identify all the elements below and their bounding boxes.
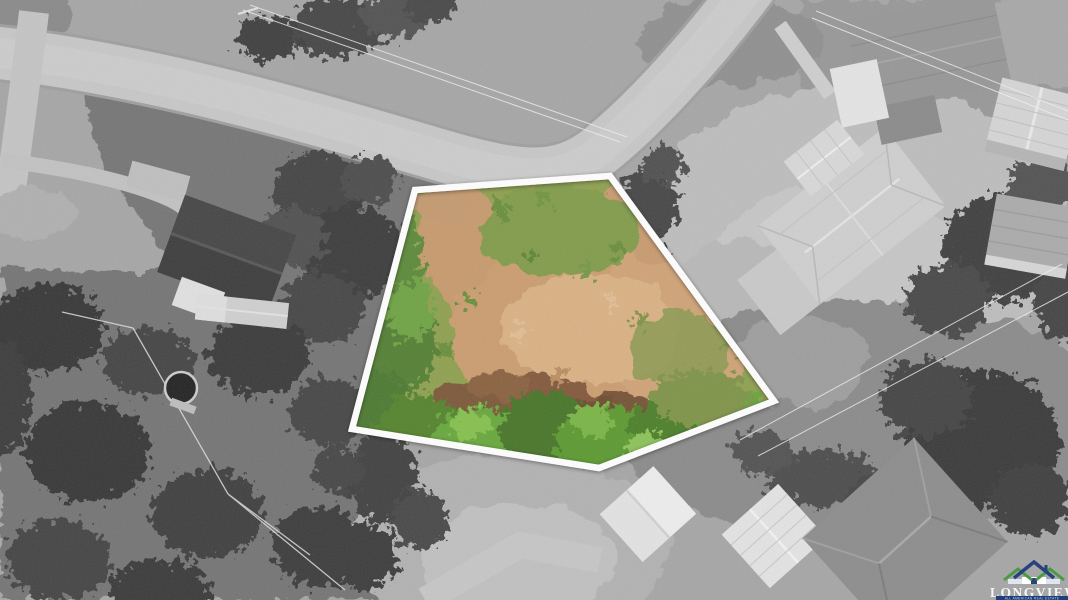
film-grain-overlay xyxy=(0,0,1068,600)
aerial-photo: LONGVIEW ALL AMERICAN REAL ESTATE xyxy=(0,0,1068,600)
aerial-photo-canvas: LONGVIEW ALL AMERICAN REAL ESTATE xyxy=(0,0,1068,600)
tagline-text: ALL AMERICAN REAL ESTATE xyxy=(1005,597,1060,600)
